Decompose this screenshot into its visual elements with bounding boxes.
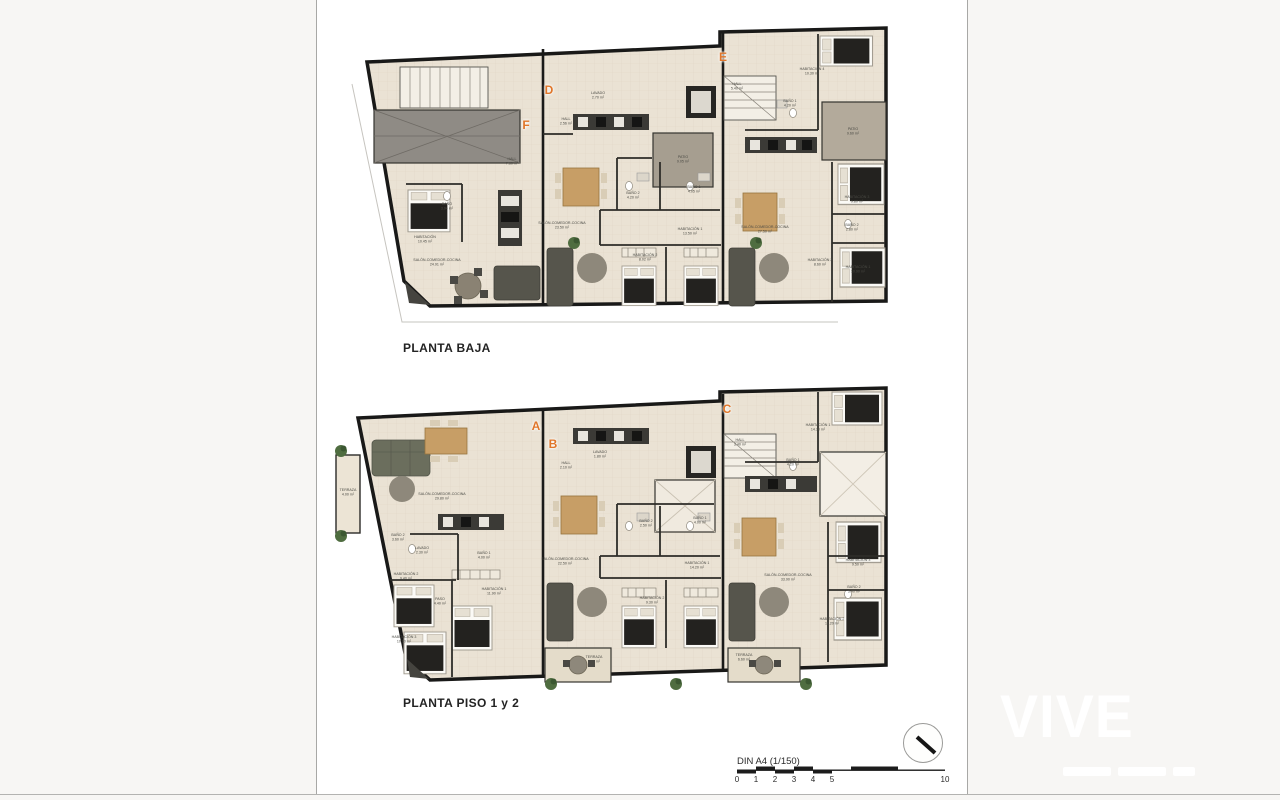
garage-ramp (374, 110, 520, 163)
terrace (336, 455, 360, 533)
watermark-tagline-bar (1118, 767, 1166, 776)
plan2-title: PLANTA PISO 1 y 2 (403, 696, 519, 710)
sheet-bottom-edge (0, 794, 1280, 795)
plant-icon (670, 678, 682, 690)
elevator (686, 446, 716, 478)
north-arrow-icon (896, 717, 950, 771)
watermark-tagline-bar (1063, 767, 1111, 776)
watermark-logo: VIVE (1000, 682, 1134, 751)
plant-icon (750, 237, 762, 249)
plant-icon (568, 237, 580, 249)
watermark-tagline-bar (1173, 767, 1195, 776)
patio (822, 102, 886, 160)
elevator (686, 86, 716, 118)
plant-icon (800, 678, 812, 690)
plan1-title: PLANTA BAJA (403, 341, 491, 355)
rug (759, 253, 789, 283)
document-canvas: HALL 7.60 m²BAÑO 3.94 m²HABITACIÓN 10.45… (0, 0, 1280, 800)
plant-icon (335, 530, 347, 542)
rug (759, 587, 789, 617)
floor-plan-planta-baja (330, 15, 900, 330)
rug (577, 253, 607, 283)
plant-icon (545, 678, 557, 690)
floor-plan-planta-piso (330, 383, 905, 700)
watermark-tagline (1063, 767, 1195, 776)
rug (577, 587, 607, 617)
plant-icon (335, 445, 347, 457)
rug (389, 476, 415, 502)
stairwell (724, 434, 776, 478)
